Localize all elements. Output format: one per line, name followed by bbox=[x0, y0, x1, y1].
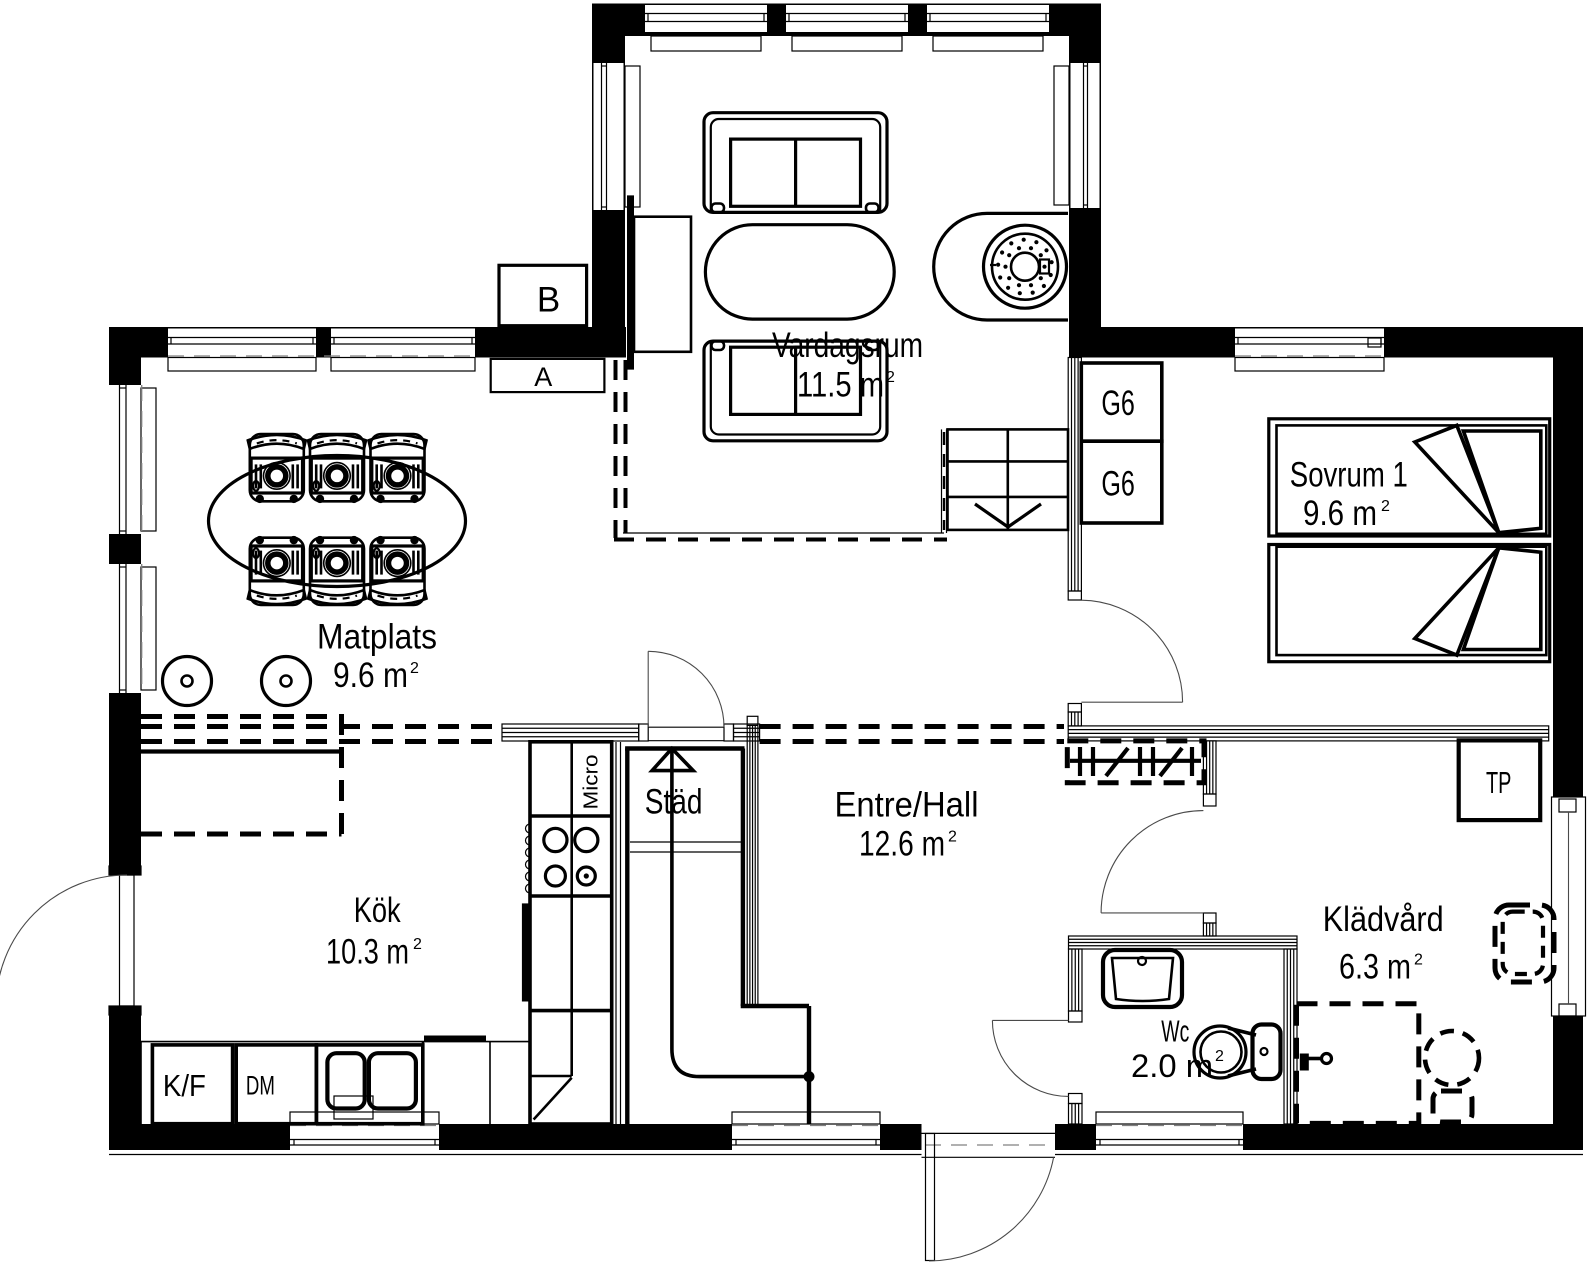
svg-text:Sovrum 1: Sovrum 1 bbox=[1290, 455, 1408, 494]
svg-text:9.6 m: 9.6 m bbox=[1303, 494, 1377, 533]
svg-text:2: 2 bbox=[1414, 952, 1423, 969]
svg-text:2: 2 bbox=[886, 369, 895, 386]
svg-text:Micro: Micro bbox=[581, 755, 603, 810]
svg-text:Entre/Hall: Entre/Hall bbox=[835, 786, 979, 825]
svg-text:Kök: Kök bbox=[354, 891, 401, 930]
svg-text:Vardagsrum: Vardagsrum bbox=[772, 326, 923, 365]
svg-text:Städ: Städ bbox=[645, 783, 703, 822]
svg-text:2.0 m: 2.0 m bbox=[1131, 1048, 1213, 1084]
svg-text:2: 2 bbox=[1215, 1048, 1224, 1065]
svg-text:11.5 m: 11.5 m bbox=[797, 366, 884, 405]
svg-text:K/F: K/F bbox=[163, 1068, 206, 1103]
svg-text:2: 2 bbox=[410, 660, 419, 677]
svg-text:G6: G6 bbox=[1101, 384, 1135, 423]
svg-text:10.3 m: 10.3 m bbox=[326, 932, 409, 971]
svg-text:Wc: Wc bbox=[1161, 1014, 1189, 1049]
svg-text:TP: TP bbox=[1486, 765, 1511, 800]
svg-text:G6: G6 bbox=[1101, 465, 1135, 504]
svg-text:12.6 m: 12.6 m bbox=[859, 825, 945, 864]
svg-text:Klädvård: Klädvård bbox=[1323, 900, 1444, 939]
svg-text:Matplats: Matplats bbox=[317, 617, 437, 656]
svg-text:2: 2 bbox=[413, 936, 422, 953]
svg-text:6.3 m: 6.3 m bbox=[1339, 948, 1411, 987]
svg-text:2: 2 bbox=[948, 829, 957, 846]
svg-text:B: B bbox=[537, 281, 560, 320]
svg-text:9.6 m: 9.6 m bbox=[333, 656, 408, 695]
svg-text:2: 2 bbox=[1381, 498, 1390, 515]
svg-text:A: A bbox=[534, 362, 552, 392]
svg-text:DM: DM bbox=[246, 1071, 275, 1101]
